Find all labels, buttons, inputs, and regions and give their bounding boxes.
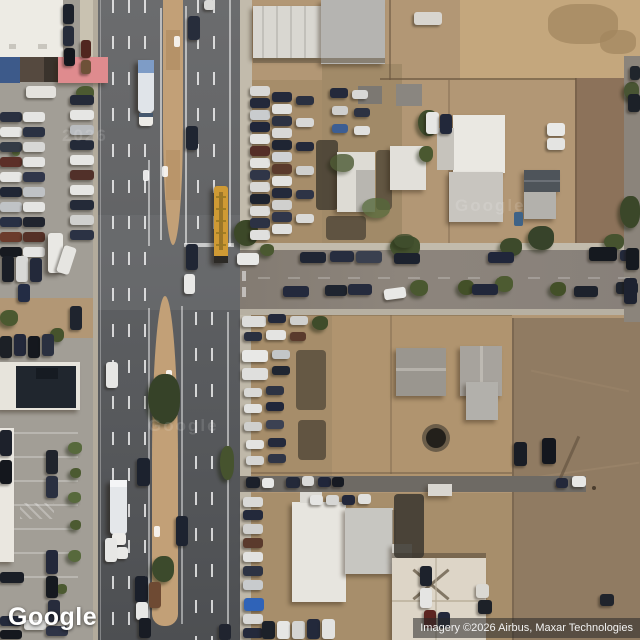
vehicle [14,334,26,356]
lane-line [195,312,197,640]
vehicle [358,494,371,504]
house-ridge [396,368,446,371]
vehicle [514,442,527,466]
vehicle [272,350,290,359]
bus-rib [216,244,226,246]
shed-ridge [524,180,560,182]
van-white [547,123,565,136]
palm-tree [550,282,566,296]
suv-dark [589,247,617,261]
house-roof-section [437,128,454,170]
tile-watermark: 2026 [62,126,108,146]
vehicle [244,388,262,397]
vehicle [318,477,331,487]
vehicle [556,478,568,488]
rv [242,350,268,362]
palm-tree [410,280,428,296]
vehicle [628,94,640,112]
tree [528,226,554,250]
vehicle [250,122,270,132]
vehicle [176,516,188,546]
van-white [237,253,259,265]
turn-arrow [162,166,168,177]
vehicle [0,142,22,152]
warehouse-shadow [253,58,385,63]
vehicle [250,158,270,168]
vehicle [244,404,262,413]
lane-line [128,0,130,640]
vehicle [268,314,286,323]
vehicle [348,284,372,295]
google-logo[interactable]: Google [8,603,97,632]
vehicle [23,172,45,182]
shed-roof [428,484,452,496]
xroof-seam [392,600,486,602]
fence-line [575,78,577,250]
vehicle [23,187,45,197]
vehicle [243,538,263,548]
vehicle [420,588,432,608]
vehicle [219,624,231,640]
junk-pile [296,350,326,410]
semi-trailer [110,480,127,534]
trailer [414,12,442,25]
vehicle [23,127,45,137]
vehicle [272,176,292,186]
vehicle [626,248,639,270]
vehicle [332,477,344,487]
vehicle [186,244,198,270]
vehicle [46,576,58,598]
roof-detail [38,44,47,49]
rv [242,316,266,327]
bus-rib [216,220,226,222]
roof-seam [276,6,278,58]
vehicle [139,618,151,638]
vehicle [352,90,368,99]
lane-line [185,6,187,244]
vehicle [440,114,452,134]
roof-seam [304,6,306,58]
median-dirt-patch [166,150,180,200]
vehicle [268,454,286,463]
lane-line [160,8,162,240]
vehicle [70,185,94,195]
vehicle [46,450,58,474]
vehicle [272,152,292,162]
fence-line [390,312,392,474]
vehicle [332,106,348,115]
turn-arrow [143,170,149,181]
vehicle [250,146,270,156]
tree [0,310,18,326]
vehicle [488,252,514,263]
vehicle [262,478,274,488]
pickup-white [184,274,195,294]
vehicle [105,538,117,562]
vehicle [186,126,198,150]
vehicle [244,422,262,431]
vehicle [70,95,94,105]
roof-vent [36,368,58,379]
vehicle [266,420,284,429]
vehicle [0,430,12,456]
weed-patch [330,154,354,172]
warehouse-metal-roof [321,0,385,64]
crosswalk-mark [242,271,246,281]
junk-pile [326,216,366,240]
roof-seam [290,6,292,58]
vehicle [0,127,22,137]
vehicle [0,202,22,212]
attribution-text: Imagery ©2026 Airbus, Maxar Technologies [420,622,633,634]
vehicle [243,566,263,576]
camper [26,86,56,98]
semi-windshield [139,113,153,117]
vehicle [472,284,498,295]
vehicle [81,60,91,74]
weed-patch [394,234,414,248]
vehicle [70,110,94,120]
vehicle [188,16,200,40]
vehicle [106,362,118,388]
tree [260,244,274,256]
vehicle [250,206,270,216]
vehicle [250,110,270,120]
bus-rib [216,208,226,210]
shrub [68,442,82,454]
container [396,84,422,106]
weed-patch [362,198,390,218]
vehicle [70,230,94,240]
semi-trailer-front [110,480,127,487]
tree [220,446,234,480]
shrub [68,492,81,503]
vehicle [272,188,292,198]
vehicle [0,112,22,122]
vehicle [0,232,22,242]
attribution-bar: Imagery ©2026 Airbus, Maxar Technologies [413,618,640,638]
vehicle [0,172,22,182]
vehicle [420,566,432,586]
vehicle [630,66,640,80]
vehicle [204,0,215,10]
vehicle [272,140,292,150]
vehicle [246,477,260,488]
vehicle [272,224,292,234]
vehicle [30,258,42,282]
vehicle [28,336,40,358]
vehicle [0,460,12,484]
vehicle [296,142,314,151]
vehicle [0,336,12,358]
bus-rib [216,232,226,234]
vehicle [266,386,284,395]
junk-pile [316,140,338,210]
vehicle [137,458,150,486]
vehicle [243,628,263,638]
vehicle [16,256,28,282]
vehicle [18,284,30,302]
shrub [419,146,433,162]
vehicle [0,157,22,167]
shrub [70,520,81,530]
shrub [70,468,81,478]
vehicle [574,286,598,297]
vehicle [149,582,161,608]
fence-line [389,0,391,80]
vehicle [478,600,492,614]
vehicle [296,118,314,127]
bus-front [214,256,228,263]
junk-pile [298,420,326,460]
vehicle [330,88,348,98]
junk-pile [394,494,424,558]
vehicle [266,402,284,411]
vehicle [354,108,370,117]
tank [426,428,446,448]
vehicle [63,26,74,46]
warehouse-roof-south [292,502,346,602]
vehicle [296,190,314,199]
vehicle [250,182,270,192]
blue-container [244,598,264,611]
lane-line [211,312,213,640]
vehicle [250,170,270,180]
vehicle [356,251,382,263]
vehicle [272,212,292,222]
hatched-zone [20,503,54,519]
vehicle [542,438,556,464]
vehicle [476,584,489,598]
lane-line [100,0,101,640]
vehicle [426,112,439,134]
vehicle [23,232,45,242]
vehicle [262,621,275,639]
vehicle [246,456,264,465]
vehicle [272,164,292,174]
vehicle [46,476,58,498]
vehicle [296,96,314,105]
vehicle [42,334,54,356]
fence-line [380,78,576,80]
pole [592,486,596,490]
tile-watermark: Google [455,196,526,216]
vehicle [70,215,94,225]
vehicle [243,580,263,590]
vehicle [296,166,314,175]
shed-roof-dark [44,57,58,82]
vehicle [23,217,45,227]
vehicle [243,524,263,534]
tile-watermark: Google [148,416,219,436]
fence-line [240,472,512,474]
vehicle [266,330,286,340]
vehicle [63,4,74,24]
vehicle [0,187,22,197]
roof-seam [262,6,264,58]
vehicle [394,253,420,264]
vehicle [244,332,262,341]
vehicle [302,476,314,486]
crosswalk-mark [242,287,246,297]
vehicle [272,200,292,210]
vehicle [325,285,347,296]
vehicle [290,332,306,341]
stall-line [14,432,78,434]
vehicle [23,202,45,212]
vehicle [272,104,292,114]
vehicle [272,128,292,138]
warehouse-ribbed-roof [345,508,393,574]
vehicle [2,256,14,282]
vehicle [0,572,24,583]
tree [312,316,328,330]
semi-trailer-front [138,60,154,73]
van-white [547,138,565,150]
vehicle [624,278,637,304]
stall-line [14,528,78,530]
street-center-line [258,277,638,279]
vehicle [290,316,308,325]
vehicle [292,621,305,639]
vehicle [81,40,91,58]
vehicle [286,477,300,488]
vehicle [296,214,314,223]
vehicle [70,306,82,330]
vehicle [250,98,270,108]
vehicle [23,157,45,167]
lane-line [229,0,231,246]
lane-line [181,306,183,624]
vehicle [70,170,94,180]
vehicle [600,594,614,606]
vehicle [310,495,323,505]
vehicle [268,438,286,447]
shed-roof [524,192,556,219]
vehicle [572,476,586,487]
vehicle [46,550,58,574]
vehicle [326,495,339,505]
roof-detail [9,44,16,49]
shed-ribbed [466,382,498,420]
vehicle [23,112,45,122]
rv [242,368,268,380]
vehicle [277,621,290,639]
blue-tarp [0,57,20,83]
tree [152,556,174,582]
vehicle [354,126,370,135]
vehicle [246,440,264,449]
bus-rib [216,196,226,198]
vehicle [0,217,22,227]
vehicle [322,619,335,639]
vehicle [64,48,75,66]
vehicle [243,510,263,520]
vehicle [330,251,354,262]
vehicle [283,286,309,297]
vehicle [342,495,355,505]
turn-arrow [154,526,160,537]
vehicle [272,116,292,126]
dirt-mound [600,30,636,54]
vehicle [250,230,270,240]
vehicle [272,366,290,375]
vehicle [250,218,270,228]
tree [620,196,640,228]
shrub [68,550,81,562]
vehicle [307,619,320,639]
vehicle [70,155,94,165]
vehicle [70,200,94,210]
vehicle [250,134,270,144]
house-roof [453,115,505,173]
vehicle [243,552,263,562]
house-gable-roof [396,348,446,396]
vehicle [243,497,263,507]
vehicle [272,92,292,102]
vehicle [23,142,45,152]
vehicle [250,86,270,96]
map-canvas[interactable]: 2026 Google Google Google Imagery ©2026 … [0,0,640,640]
vehicle [332,124,348,133]
vehicle [250,194,270,204]
turn-arrow [174,36,180,47]
south-sidewalk [240,308,640,315]
vehicle [135,576,148,602]
van [116,547,128,559]
vehicle [243,614,263,624]
vehicle [300,252,326,263]
